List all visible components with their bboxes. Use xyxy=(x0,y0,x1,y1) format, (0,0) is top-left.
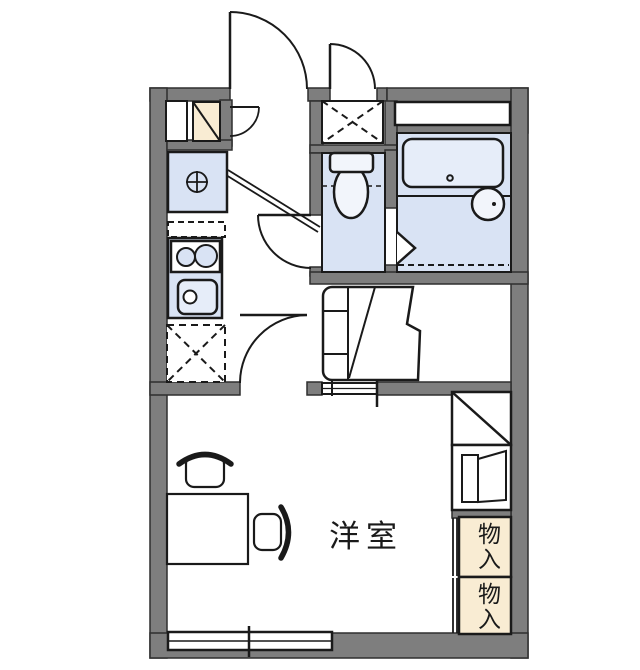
washing-machine-space xyxy=(322,101,383,143)
entry-closet-door-arc xyxy=(230,107,259,136)
bathroom-window xyxy=(395,102,510,125)
western-room-label: 洋室 xyxy=(329,511,403,556)
wall-toilet-bath-upper xyxy=(385,150,397,208)
outer-wall-left xyxy=(150,88,167,658)
stove-burner-left xyxy=(177,248,195,266)
bathroom-sink xyxy=(472,188,504,220)
outer-wall-top-mid xyxy=(308,88,330,101)
chair-top-seat xyxy=(186,456,224,487)
overhead-shelf xyxy=(168,222,225,237)
toilet-tank xyxy=(330,153,373,172)
stove-burner-right xyxy=(195,245,217,267)
entry-step-line-2 xyxy=(226,175,318,232)
wall-stair-room-top xyxy=(310,272,528,284)
main-room-door-arc xyxy=(240,315,307,383)
drain-icon xyxy=(186,171,208,193)
kitchen-sink-drain xyxy=(184,291,197,304)
bathroom-sink-faucet xyxy=(492,202,496,206)
entry-cabinet-white xyxy=(166,101,187,141)
desk xyxy=(167,494,248,564)
wall-toilet-left-upper xyxy=(310,153,322,215)
wall-stub-hall xyxy=(307,382,322,395)
refrigerator-space xyxy=(167,325,225,382)
entrance-door-arc xyxy=(230,12,307,89)
chair-right-back xyxy=(281,507,289,558)
storage-top-label: 物入 xyxy=(473,522,499,572)
toilet-bowl xyxy=(334,166,368,218)
outer-wall-top-mid2 xyxy=(377,88,387,101)
storage-bottom-label: 物入 xyxy=(473,582,499,632)
wall-kitchen-bottom xyxy=(150,382,240,395)
entry-step-line-1 xyxy=(228,170,320,227)
service-door-arc xyxy=(330,44,375,89)
outer-wall-right xyxy=(511,88,528,658)
bathroom xyxy=(397,133,511,272)
chair-right-seat xyxy=(254,514,281,550)
toilet-room xyxy=(322,153,385,272)
staircase xyxy=(323,287,420,380)
main-room-furniture xyxy=(167,455,289,565)
cabinet-panel-right xyxy=(478,451,506,502)
floor-plan-drawing xyxy=(0,0,640,670)
floor-plan: 洋室 物入 物入 xyxy=(0,0,640,670)
kitchen xyxy=(167,152,227,382)
cabinet-panel-left xyxy=(462,455,478,502)
